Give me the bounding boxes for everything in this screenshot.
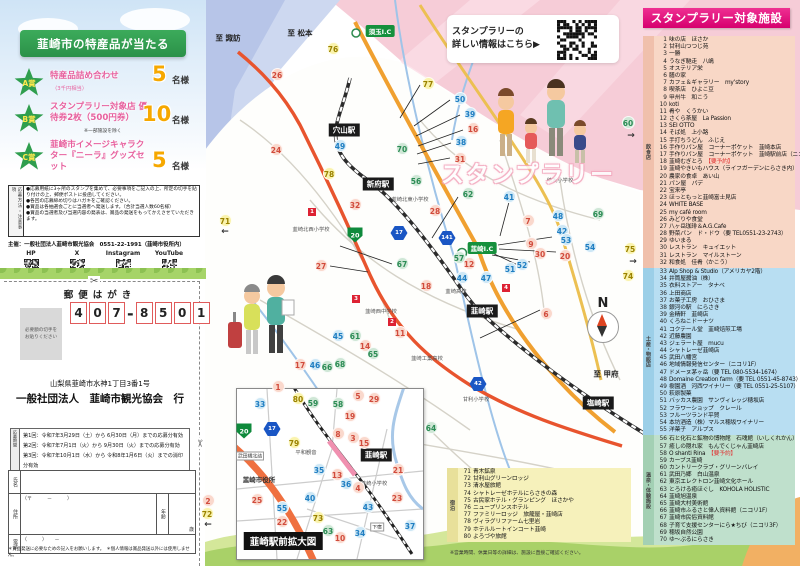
list-item-number: 61 bbox=[655, 472, 667, 479]
map-marker-41: 41 bbox=[503, 190, 516, 203]
list-item: 11肴や くうかい bbox=[655, 109, 800, 116]
prize-a-note: （3千円相当） bbox=[52, 84, 87, 92]
list-item: 56石と化石と鉱物の博物館 石魂館（いしくれかん） bbox=[655, 436, 798, 443]
list-item-name: 和食処 佳肴（かこう） bbox=[669, 260, 731, 267]
list-item: 51バッカス農園 サンヴィレッジ穂坂店 bbox=[655, 398, 800, 405]
list-item-name: パン屋 パデ bbox=[669, 181, 703, 188]
sns-label: YouTube bbox=[146, 250, 192, 257]
map-label-station: 韮崎駅 bbox=[467, 305, 498, 318]
list-item-number: 32 bbox=[655, 260, 667, 267]
list-item-number: 78 bbox=[459, 519, 471, 526]
map-marker-64: 64 bbox=[425, 421, 438, 434]
map-label-school: 韮崎北東小学校 bbox=[391, 195, 428, 203]
map-marker-20: 20 bbox=[559, 249, 572, 262]
map-marker-44: 44 bbox=[456, 271, 469, 284]
list-item-name: 衣料ストアー タナベ bbox=[669, 283, 725, 290]
list-item: 20農家の食卓 あい山 bbox=[655, 174, 800, 181]
lodging-list: 宿泊71青木鉱泉72甘利山グリーンロッジ73清水屋旅館74シャトレーゼホテルにら… bbox=[447, 468, 631, 542]
list-item: 3一勝 bbox=[655, 51, 800, 58]
info-banner-text: スタンプラリーの 詳しい情報はこちら▶ bbox=[452, 26, 540, 52]
organizer-line: 主催：一般社団法人韮崎市観光協会 0551-22-1991（韮崎市役所内） bbox=[8, 240, 200, 248]
list-item: 48Domaine Creation farm（要 TEL 0551-45-87… bbox=[655, 377, 800, 384]
map-label-dir: 至 諏訪 bbox=[215, 33, 240, 44]
list-item-name: 清水屋旅館 bbox=[473, 483, 501, 490]
map-marker-33: 33 bbox=[254, 397, 267, 410]
list-item: 47ドメーヌ茅ヶ岳（要 TEL 080-5534-1674） bbox=[655, 370, 800, 377]
list-item-name: 韮崎旭温泉 bbox=[669, 494, 697, 501]
section-label: 温泉・体験施設 bbox=[643, 435, 654, 545]
section-label: 宿泊 bbox=[447, 468, 458, 542]
map-marker-47: 47 bbox=[480, 271, 493, 284]
map-marker-4: 4 bbox=[352, 481, 365, 494]
map-marker-26: 26 bbox=[271, 68, 284, 81]
postal-digit: 0 bbox=[89, 302, 106, 324]
list-item: 25my café room bbox=[655, 210, 800, 217]
flyer-page: スタンプラリーの 詳しい情報はこちら▶ N 至 諏訪至 松本至 甲府須玉I.C韮… bbox=[0, 0, 800, 566]
list-item-number: 79 bbox=[459, 527, 471, 534]
list-item: 40くろねこドーナツ bbox=[655, 319, 800, 326]
list-item-number: 5 bbox=[655, 66, 667, 73]
list-item-name: ゆ〜ぷるにらさき bbox=[669, 537, 714, 544]
age-label: 年齢 bbox=[157, 494, 169, 535]
note-item: ●賞品は各抽選会ごとに当選者へ発送します。（合計当選人数60名様） bbox=[26, 205, 197, 211]
sns-label: Instagram bbox=[100, 250, 146, 257]
list-item-number: 67 bbox=[655, 515, 667, 522]
section-items: 56石と化石と鉱物の博物館 石魂館（いしくれかん）57癒しの隠れ家 もんでくじゃ… bbox=[654, 435, 798, 545]
map-marker-53: 53 bbox=[560, 233, 573, 246]
section-items: 33Alp Shop & Studio（アメリカヤ2階）34井筒屋醤油（株）35… bbox=[654, 268, 800, 435]
spot-badge-3: 3 bbox=[352, 295, 360, 303]
facility-section: 飲食店1味の店 ほさか2甘利山つつじ苑3一勝4うなぎ馳走 八嶋5オステリア栄6膳… bbox=[643, 36, 795, 268]
list-item-number: 30 bbox=[655, 245, 667, 252]
list-item-number: 27 bbox=[655, 224, 667, 231]
list-item-number: 52 bbox=[655, 406, 667, 413]
postcard-header: 郵便はがき bbox=[0, 287, 200, 301]
list-item-number: 47 bbox=[655, 370, 667, 377]
map-marker-29: 29 bbox=[368, 392, 381, 405]
map-marker-32: 32 bbox=[349, 198, 362, 211]
postal-digit: 8 bbox=[136, 302, 153, 324]
list-item-number: 40 bbox=[655, 319, 667, 326]
list-item-number: 23 bbox=[655, 195, 667, 202]
list-item-name: 古民家ホテル・グランピング ほさかや bbox=[473, 498, 574, 505]
list-item-number: 26 bbox=[655, 217, 667, 224]
map-label-station: 塩崎駅 bbox=[583, 397, 614, 410]
list-item-name: 一勝 bbox=[669, 51, 680, 58]
list-item-name: ヴィラグリファーム七里岩 bbox=[473, 519, 540, 526]
stamp-box: 必要額の切手を お貼りください bbox=[20, 308, 62, 360]
list-item-number: 70 bbox=[655, 537, 667, 544]
map-marker-37: 37 bbox=[404, 519, 417, 532]
map-marker-21: 21 bbox=[392, 463, 405, 476]
list-item: 23ほっともっと韮崎富士見店 bbox=[655, 195, 800, 202]
list-item: 46地域情報発信センター（ニコリ1F） bbox=[655, 362, 800, 369]
list-item: 27八ヶ岳珈琲＆A.G.Cafe bbox=[655, 224, 800, 231]
list-item: 32和食処 佳肴（かこう） bbox=[655, 260, 800, 267]
map-label-dir: 至 甲府 bbox=[593, 369, 618, 380]
cloud bbox=[120, 8, 190, 32]
list-item-name: 石と化石と鉱物の博物館 石魂館（いしくれかん） bbox=[669, 436, 798, 443]
map-marker-50: 50 bbox=[454, 92, 467, 105]
map-marker-67: 67 bbox=[396, 257, 409, 270]
map-marker-25: 25 bbox=[251, 493, 264, 506]
list-item-number: 76 bbox=[459, 505, 471, 512]
prize-a-count: 5 bbox=[152, 62, 167, 86]
list-item-number: 29 bbox=[655, 238, 667, 245]
list-item-name: そば処 上小路 bbox=[669, 130, 708, 137]
map-label-school: 韮崎西中学校 bbox=[365, 307, 397, 315]
reservation-required: 【要予約】 bbox=[711, 451, 736, 457]
map-marker-16: 16 bbox=[467, 122, 480, 135]
round-row: 第1回：令和7年3月29日（土）から 6月30日（月）までの応募分有効 bbox=[23, 431, 186, 441]
map-marker-34: 34 bbox=[354, 526, 367, 539]
map-marker-75: 75 bbox=[624, 242, 637, 255]
map-marker-59: 59 bbox=[307, 396, 320, 409]
map-marker-17: 17 bbox=[294, 358, 307, 371]
postal-code-boxes: 407-8501 bbox=[70, 302, 210, 324]
list-item-number: 65 bbox=[655, 501, 667, 508]
list-item-number: 59 bbox=[655, 458, 667, 465]
map-marker-60: 60 bbox=[622, 116, 635, 129]
list-item-number: 75 bbox=[459, 498, 471, 505]
map-label-school: 韮崎高校 bbox=[445, 287, 466, 295]
scissors-icon: ✂ bbox=[88, 276, 100, 287]
sender-address: 山梨県韮崎市水神1丁目3番1号 bbox=[0, 379, 200, 389]
list-item-number: 20 bbox=[655, 174, 667, 181]
list-item-number: 38 bbox=[655, 305, 667, 312]
list-item-number: 69 bbox=[655, 530, 667, 537]
map-marker-72: 72 bbox=[201, 507, 214, 520]
list-item-name: 八ヶ岳珈琲＆A.G.Cafe bbox=[669, 224, 726, 231]
map-marker-22: 22 bbox=[276, 515, 289, 528]
spot-badge-1: 1 bbox=[308, 208, 316, 216]
list-item-number: 11 bbox=[655, 109, 667, 116]
list-item-name: 喫茶店 ひよこ豆 bbox=[669, 87, 714, 94]
map-marker-74: 74 bbox=[622, 269, 635, 282]
list-item: 19韮崎やきいもハウス（ライフガーデンにらさき内） bbox=[655, 166, 800, 173]
form-row-name: 氏名 bbox=[9, 471, 196, 494]
map-marker-11: 11 bbox=[394, 326, 407, 339]
application-form: 氏名 住所 （〒 － ） 年齢 歳 電話 （ ） － bbox=[8, 470, 196, 554]
list-item-number: 7 bbox=[655, 80, 667, 87]
map-marker-36: 36 bbox=[340, 477, 353, 490]
map-marker-10: 10 bbox=[334, 531, 347, 544]
list-item-name: my café room bbox=[669, 210, 707, 217]
rounds-rows: 第1回：令和7年3月29日（土）から 6月30日（月）までの応募分有効第2回：令… bbox=[20, 429, 189, 473]
name-label: 氏名 bbox=[9, 471, 21, 494]
compass: N bbox=[586, 296, 620, 340]
list-item-number: 71 bbox=[459, 469, 471, 476]
map-marker-73: 73 bbox=[312, 511, 325, 524]
address-label: 住所 bbox=[9, 494, 21, 535]
list-item-name: 地域情報発信センター（ニコリ1F） bbox=[669, 362, 760, 369]
map-marker-40: 40 bbox=[304, 491, 317, 504]
section-label: 土産・物販店 bbox=[643, 268, 654, 435]
list-item: 14そば処 上小路 bbox=[655, 130, 800, 137]
map-marker-15: 15 bbox=[358, 436, 371, 449]
list-item-name: 農家の食卓 あい山 bbox=[669, 174, 719, 181]
list-item: 73清水屋旅館 bbox=[459, 483, 574, 490]
prize-b-note: ※一部施設を除く bbox=[84, 127, 122, 134]
map-label-smallbox: 下宿 bbox=[370, 523, 384, 532]
map-marker-52: 52 bbox=[516, 258, 529, 271]
map-label-arrow: → bbox=[627, 131, 635, 141]
list-item: 16手作りパン屋 コーナーポケット 韮崎本店 bbox=[655, 145, 800, 152]
map-label-station: 新府駅 bbox=[363, 178, 394, 191]
map-marker-62: 62 bbox=[462, 187, 475, 200]
map-label-arrow: ← bbox=[204, 520, 212, 530]
list-item-number: 49 bbox=[655, 384, 667, 391]
sutama-ic-node bbox=[352, 29, 360, 37]
postal-digit: 0 bbox=[174, 302, 191, 324]
list-item: 63とろける癒ほぐし KOHOLA HOLISTIC bbox=[655, 487, 798, 494]
sns-label: X bbox=[54, 250, 100, 257]
map-marker-65: 65 bbox=[367, 347, 380, 360]
map-marker-46: 46 bbox=[309, 358, 322, 371]
list-item-number: 55 bbox=[655, 427, 667, 434]
prize-ribbon-text: 韮崎市の特産品が当たる bbox=[37, 36, 169, 52]
list-item-name: 上田商店 bbox=[669, 291, 691, 298]
list-item-name: フルーツランド平賀 bbox=[669, 413, 719, 420]
list-item-number: 4 bbox=[655, 59, 667, 66]
rounds-label: 応募期間 bbox=[11, 429, 20, 473]
list-item-number: 22 bbox=[655, 188, 667, 195]
notes-label: 応募方法・注意事項 bbox=[9, 186, 24, 236]
list-item-number: 57 bbox=[655, 444, 667, 451]
list-item: 43ジェラート屋 mucu bbox=[655, 341, 800, 348]
compass-needle-north bbox=[597, 314, 607, 326]
list-item-name: うなぎ馳走 八嶋 bbox=[669, 59, 714, 66]
map-label-school: 平和観音 bbox=[295, 448, 316, 456]
grass-strip bbox=[0, 268, 206, 279]
name-field[interactable] bbox=[21, 471, 196, 494]
list-item-number: 1 bbox=[655, 37, 667, 44]
list-item: 55洋菓子 アルプス bbox=[655, 427, 800, 434]
list-item: 12さくら茶屋 La Passion bbox=[655, 116, 800, 123]
list-item-number: 53 bbox=[655, 413, 667, 420]
list-item: 36上田商店 bbox=[655, 291, 800, 298]
list-item: 24WHITE BASE bbox=[655, 202, 800, 209]
facility-section: 宿泊71青木鉱泉72甘利山グリーンロッジ73清水屋旅館74シャトレーゼホテルにら… bbox=[447, 468, 574, 542]
map-label-arrow: → bbox=[629, 257, 637, 267]
list-item-number: 72 bbox=[459, 476, 471, 483]
map-marker-77: 77 bbox=[422, 77, 435, 90]
map-label-school: 韮崎小学校 bbox=[361, 479, 388, 487]
list-item-name: 癒しの隠れ家 もんでくじゃん韮崎店 bbox=[669, 444, 764, 451]
list-item: 52フラワーショップ クレール bbox=[655, 406, 800, 413]
list-item-name: 洋菓子 アルプス bbox=[669, 427, 714, 434]
list-item-number: 77 bbox=[459, 512, 471, 519]
list-item-number: 21 bbox=[655, 181, 667, 188]
map-marker-69: 69 bbox=[592, 207, 605, 220]
list-item: 67韮崎市民俗資料館 bbox=[655, 515, 798, 522]
map-marker-18: 18 bbox=[420, 279, 433, 292]
list-item-number: 2 bbox=[655, 44, 667, 51]
map-label-ic: 須玉I.C bbox=[366, 25, 395, 37]
list-item: 4うなぎ馳走 八嶋 bbox=[655, 59, 800, 66]
map-marker-5: 5 bbox=[352, 389, 365, 402]
prize-c-unit: 名様 bbox=[172, 160, 189, 172]
map-marker-6: 6 bbox=[540, 307, 553, 320]
map-marker-63: 63 bbox=[322, 524, 335, 537]
map-marker-35: 35 bbox=[313, 463, 326, 476]
list-item-number: 10 bbox=[655, 102, 667, 109]
list-item-name: レストラン キュイエット bbox=[669, 245, 736, 252]
list-item: 41コクテール堂 韮崎焙煎工場 bbox=[655, 327, 800, 334]
list-item-number: 56 bbox=[655, 436, 667, 443]
list-item-number: 36 bbox=[655, 291, 667, 298]
prize-c-count: 5 bbox=[152, 148, 167, 172]
map-marker-48: 48 bbox=[552, 209, 565, 222]
list-item-number: 28 bbox=[655, 231, 667, 238]
list-item: 5オステリア栄 bbox=[655, 66, 800, 73]
list-item-name: くろねこドーナツ bbox=[669, 319, 714, 326]
map-marker-30: 30 bbox=[534, 247, 547, 260]
list-item: 15手打ちうどん ふじえ bbox=[655, 138, 800, 145]
map-marker-80: 80 bbox=[292, 392, 305, 405]
map-marker-78: 78 bbox=[323, 167, 336, 180]
list-item-name: Domaine Creation farm（要 TEL 0551-45-8743… bbox=[669, 377, 800, 384]
list-item-number: 44 bbox=[655, 348, 667, 355]
list-item-number: 17 bbox=[655, 152, 667, 159]
map-marker-31: 31 bbox=[454, 152, 467, 165]
round-row: 第3回：令和7年10月1日（水）から 令和8年1月6日（火）までの消印分有効 bbox=[23, 451, 186, 471]
list-item-number: 68 bbox=[655, 523, 667, 530]
map-marker-58: 58 bbox=[332, 397, 345, 410]
map-marker-19: 19 bbox=[344, 409, 357, 422]
map-label-ic: 韮崎I.C bbox=[468, 242, 497, 254]
map-label-smallbox: 武田橋北詰 bbox=[236, 452, 264, 461]
postal-digit: 7 bbox=[108, 302, 125, 324]
list-item-name: 手作りパン屋 コーナーポケット 韮崎本店 bbox=[669, 145, 781, 152]
prize-ribbon: 韮崎市の特産品が当たる bbox=[20, 30, 186, 57]
age-field[interactable]: 歳 bbox=[169, 494, 196, 535]
list-item-name: 甲州牛 和こう bbox=[669, 95, 708, 102]
list-item-number: 37 bbox=[655, 298, 667, 305]
map-label-station: 穴山駅 bbox=[329, 124, 360, 137]
list-item-number: 42 bbox=[655, 334, 667, 341]
list-item-name: とろける癒ほぐし KOHOLA HOLISTIC bbox=[669, 487, 769, 494]
compass-n-label: N bbox=[586, 296, 620, 311]
prize-a-unit: 名様 bbox=[172, 74, 189, 86]
list-item-name: みどりや食堂 bbox=[669, 217, 703, 224]
list-item-number: 45 bbox=[655, 355, 667, 362]
list-item: 62東京エレクトロン韮崎文化ホール bbox=[655, 479, 798, 486]
list-item-name: O shanti Rina 【要予約】 bbox=[669, 451, 736, 458]
list-item-number: 62 bbox=[655, 479, 667, 486]
list-item: 37お菓子工房 おひさま bbox=[655, 298, 800, 305]
list-item-name: バッカス農園 サンヴィレッジ穂坂店 bbox=[669, 398, 764, 405]
list-item-number: 16 bbox=[655, 145, 667, 152]
list-item-number: 50 bbox=[655, 391, 667, 398]
map-marker-56: 56 bbox=[410, 174, 423, 187]
map-marker-79: 79 bbox=[288, 436, 301, 449]
list-item-name: 近藤農園 bbox=[669, 334, 691, 341]
form-row-address: 住所 （〒 － ） 年齢 歳 bbox=[9, 494, 196, 535]
list-item-number: 63 bbox=[655, 487, 667, 494]
spot-badge-4: 4 bbox=[502, 284, 510, 292]
list-item-name: WHITE BASE bbox=[669, 202, 703, 209]
map-marker-24: 24 bbox=[270, 143, 283, 156]
info-qr-code bbox=[557, 20, 597, 60]
map-marker-39: 39 bbox=[464, 107, 477, 120]
list-item-name: 子育て支援センターにら★ちび（ニコリ3F） bbox=[669, 523, 781, 530]
list-item: 59カーブス韮崎 bbox=[655, 458, 798, 465]
map-marker-1: 1 bbox=[272, 380, 285, 393]
list-item-number: 6 bbox=[655, 73, 667, 80]
map-marker-43: 43 bbox=[362, 500, 375, 513]
list-item-number: 35 bbox=[655, 283, 667, 290]
section-items: 71青木鉱泉72甘利山グリーンロッジ73清水屋旅館74シャトレーゼホテルにらさき… bbox=[458, 468, 574, 542]
list-item-number: 13 bbox=[655, 123, 667, 130]
prize-b-unit: 名様 bbox=[172, 114, 189, 126]
list-item-name: コクテール堂 韮崎焙煎工場 bbox=[669, 327, 742, 334]
postal-digit: 1 bbox=[193, 302, 210, 324]
list-item-number: 54 bbox=[655, 420, 667, 427]
prize-b-count: 10 bbox=[142, 102, 171, 126]
list-item-name: シャトレーゼホテルにらさきの森 bbox=[473, 491, 557, 498]
list-item-number: 12 bbox=[655, 116, 667, 123]
list-item-number: 58 bbox=[655, 451, 667, 458]
stamp-note: 必要額の切手を お貼りください bbox=[25, 327, 57, 341]
list-item-name: ドメーヌ茅ヶ岳（要 TEL 080-5534-1674） bbox=[669, 370, 780, 377]
list-item: 64韮崎旭温泉 bbox=[655, 494, 798, 501]
list-item-number: 51 bbox=[655, 398, 667, 405]
list-item-number: 8 bbox=[655, 87, 667, 94]
list-item: 57癒しの隠れ家 もんでくじゃん韮崎店 bbox=[655, 444, 798, 451]
map-marker-51: 51 bbox=[504, 262, 517, 275]
list-item: 58O shanti Rina 【要予約】 bbox=[655, 451, 798, 458]
list-item: 79ホテルルートインコート韮崎 bbox=[459, 527, 574, 534]
map-label-school: 甘利小学校 bbox=[463, 395, 490, 403]
map-label-school: 韮崎工業高校 bbox=[411, 354, 443, 362]
map-marker-28: 28 bbox=[429, 204, 442, 217]
address-field[interactable]: （〒 － ） bbox=[21, 494, 157, 535]
note-item: ●応募用紙に3ヶ所のスタンプを集めて、必要事項をご記入の上、所定の切手を貼り付け… bbox=[26, 187, 197, 199]
list-item: 30レストラン キュイエット bbox=[655, 245, 800, 252]
list-item: 53フルーツランド平賀 bbox=[655, 413, 800, 420]
list-item-number: 18 bbox=[655, 159, 667, 166]
scissors-icon: ✂ bbox=[194, 437, 205, 449]
list-item-name: koti bbox=[669, 102, 679, 109]
postal-digit: 4 bbox=[70, 302, 87, 324]
rounds-table: 応募期間 第1回：令和7年3月29日（土）から 6月30日（月）までの応募分有効… bbox=[10, 428, 190, 474]
list-item: 78ヴィラグリファーム七里岩 bbox=[459, 519, 574, 526]
recipient-line: 一般社団法人 韮崎市観光協会 行 bbox=[0, 391, 200, 406]
compass-needle-south bbox=[597, 326, 607, 337]
map-marker-38: 38 bbox=[455, 135, 468, 148]
list-item-number: 3 bbox=[655, 51, 667, 58]
list-item: 70ゆ〜ぷるにらさき bbox=[655, 537, 798, 544]
cut-line-horizontal bbox=[4, 281, 200, 282]
compass-dial bbox=[587, 311, 619, 343]
list-item-number: 9 bbox=[655, 95, 667, 102]
list-item-number: 60 bbox=[655, 465, 667, 472]
list-item-number: 43 bbox=[655, 341, 667, 348]
list-item-number: 34 bbox=[655, 276, 667, 283]
list-item-number: 46 bbox=[655, 362, 667, 369]
deco-title: スタンプラリー bbox=[441, 155, 615, 189]
map-marker-7: 7 bbox=[522, 214, 535, 227]
list-item-name: オステリア栄 bbox=[669, 66, 703, 73]
section-label: 飲食店 bbox=[643, 36, 654, 268]
note-item: ●賞品の当選者及び当選内容の発表は、賞品の発送をもってかえさせていただきます。 bbox=[26, 211, 197, 223]
round-row: 第2回：令和7年7月1日（火）から 9月30日（火）までの応募分有効 bbox=[23, 441, 186, 451]
map-label-station: 韮崎駅 bbox=[361, 449, 392, 462]
map-label-school: 韮崎北西小学校 bbox=[292, 225, 329, 233]
list-item-number: 25 bbox=[655, 210, 667, 217]
map-marker-55: 55 bbox=[276, 501, 289, 514]
